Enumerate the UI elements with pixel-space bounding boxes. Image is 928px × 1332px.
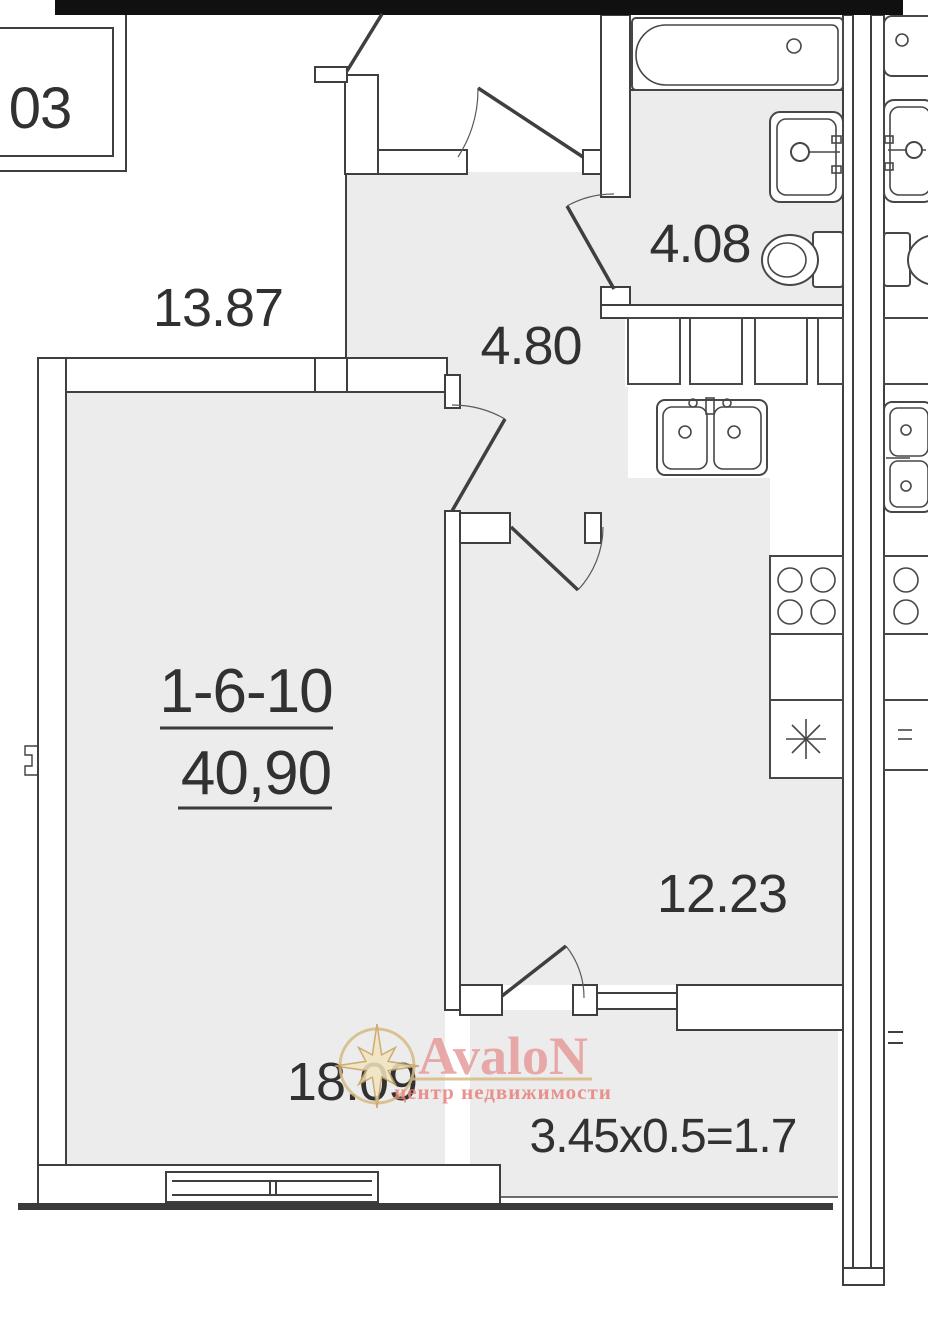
entry-door-swing — [458, 88, 478, 157]
neighbor-unit-label: 03 — [9, 76, 72, 141]
stove-icon — [770, 556, 843, 634]
kitchen-sink-icon — [657, 398, 767, 475]
living-window — [166, 1172, 378, 1202]
shaft-wall-b — [871, 15, 884, 1278]
neighbor-cabinet — [884, 318, 928, 384]
neighbor-fridge-icon — [884, 700, 928, 770]
bathroom-area-label: 4.08 — [649, 214, 750, 274]
floor-plan-page: 03 13.87 4.80 4.08 12.23 18.09 3.45x0.5=… — [0, 0, 928, 1332]
wall-living-kitchen — [445, 511, 460, 1010]
neighbor-washbasin-icon — [884, 100, 928, 202]
neighbor-sink-icon — [884, 402, 928, 512]
neighbor-stove-icon — [884, 556, 928, 634]
watermark-tagline: центр недвижимости — [394, 1080, 612, 1104]
watermark-brand: AvaloN — [418, 1026, 588, 1086]
hall-south-wall — [460, 513, 510, 543]
kitchen-area-label: 12.23 — [657, 864, 787, 924]
neighbor-cabinet-2 — [884, 634, 928, 700]
total-area-label: 40,90 — [181, 739, 331, 808]
balcony-window — [597, 993, 677, 1009]
wall-living-left — [38, 358, 66, 1205]
balcony-wall-post-west — [460, 985, 502, 1015]
entry-wall-right — [583, 150, 601, 174]
hallway-area-label: 4.80 — [480, 316, 581, 376]
snowflake-icon — [786, 719, 826, 759]
wall-living-top — [38, 358, 447, 392]
dimension-ticks — [888, 1032, 903, 1043]
outer-wall-top — [55, 0, 903, 15]
corridor-door-leaf — [347, 14, 382, 71]
unit-number-label: 1-6-10 — [159, 657, 332, 726]
kitchen-door-post — [585, 513, 601, 543]
floor-plan-drawing: 03 13.87 4.80 4.08 12.23 18.09 3.45x0.5=… — [0, 0, 928, 1332]
wall-bath-west — [601, 15, 630, 197]
base-wall-line — [18, 1203, 833, 1210]
room-top-area-label: 13.87 — [153, 278, 283, 338]
fridge-icon — [770, 700, 843, 778]
wall-clip-mark — [25, 746, 38, 775]
washbasin-icon — [770, 112, 843, 202]
door-post — [315, 358, 347, 392]
entry-door-leaf — [478, 88, 583, 157]
kitchen-floor-west — [460, 528, 601, 985]
neighbor-fixtures — [884, 16, 928, 770]
watermark: AvaloN центр недвижимости — [335, 1024, 612, 1108]
shaft-wall-a — [843, 15, 853, 1278]
balcony-wall-east — [677, 985, 843, 1030]
wall-bath-south — [601, 305, 843, 318]
wall-hall-west — [345, 75, 378, 174]
balcony-door-post-east — [573, 985, 597, 1015]
living-door-post-top — [445, 375, 460, 408]
entry-wall-left — [378, 150, 467, 174]
bathtub-icon — [632, 18, 843, 90]
corridor-door-post — [315, 67, 347, 82]
toilet-icon — [762, 232, 843, 287]
neighbor-bathtub-icon — [884, 16, 928, 76]
neighbor-toilet-icon — [884, 233, 928, 286]
shaft-wall-cap — [843, 1268, 884, 1285]
kitchen-cabinet-icon — [770, 634, 843, 700]
balcony-formula-label: 3.45x0.5=1.7 — [530, 1110, 797, 1163]
